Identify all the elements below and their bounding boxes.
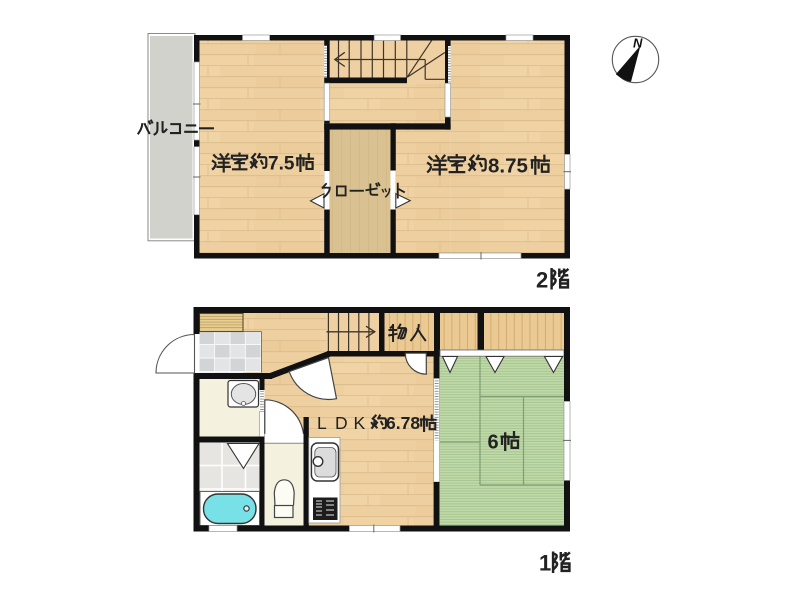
- svg-text:1: 1: [539, 551, 551, 576]
- svg-text:K: K: [354, 413, 366, 433]
- svg-text:6: 6: [488, 432, 499, 454]
- svg-text:8.75: 8.75: [488, 155, 528, 178]
- svg-text:D: D: [335, 413, 348, 433]
- svg-text:6.78: 6.78: [386, 413, 420, 433]
- svg-text:N: N: [633, 36, 643, 51]
- svg-text:7.5: 7.5: [268, 154, 295, 175]
- svg-text:2: 2: [536, 268, 548, 293]
- svg-text:L: L: [317, 413, 327, 433]
